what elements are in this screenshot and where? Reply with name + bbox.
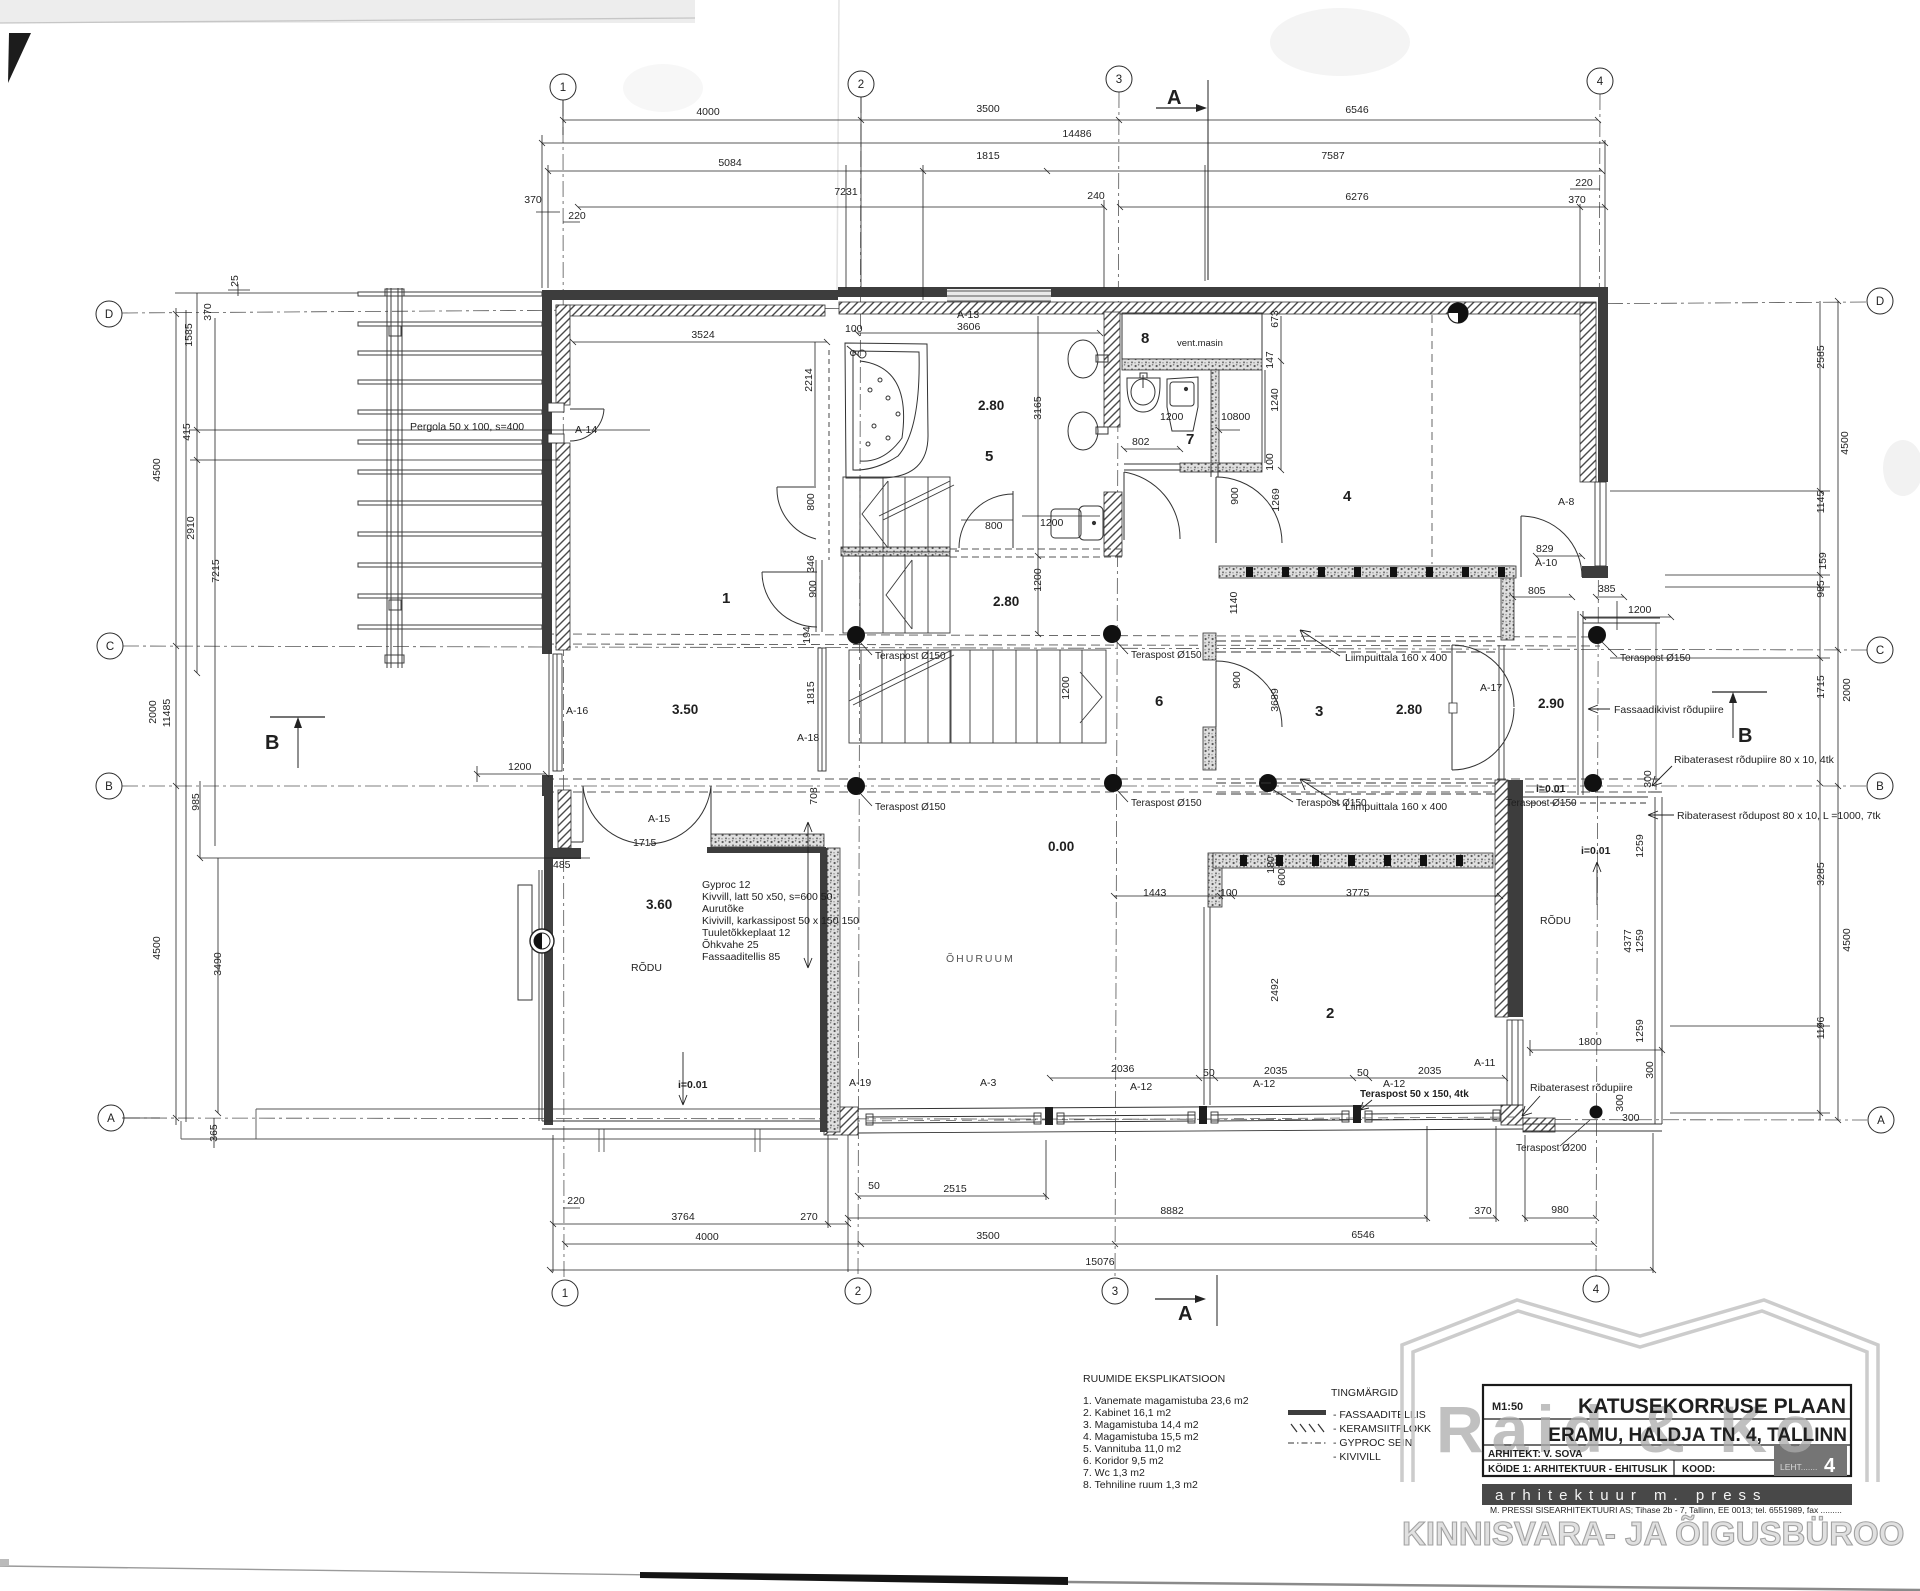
svg-text:RÕDU: RÕDU [631,961,662,974]
svg-text:1715: 1715 [1815,675,1827,699]
svg-text:300: 300 [1644,1061,1656,1079]
svg-text:A-16: A-16 [566,705,588,717]
svg-text:147: 147 [1264,351,1276,369]
svg-text:980: 980 [1551,1204,1569,1216]
svg-text:3764: 3764 [671,1211,695,1223]
svg-text:800: 800 [985,520,1003,532]
svg-text:3: 3 [1112,1286,1118,1298]
svg-text:ERAMU, HALDJA TN. 4, TALLINN: ERAMU, HALDJA TN. 4, TALLINN [1548,1425,1847,1446]
svg-text:365: 365 [208,1124,220,1142]
svg-text:Teraspost Ø150: Teraspost Ø150 [1131,798,1202,809]
svg-text:159: 159 [1817,552,1829,570]
svg-text:11485: 11485 [161,699,173,728]
svg-text:800: 800 [805,493,817,511]
svg-text:A-11: A-11 [1474,1057,1496,1069]
svg-text:Teraspost Ø150: Teraspost Ø150 [875,802,946,813]
svg-text:25: 25 [229,275,241,287]
svg-text:Teraspost Ø200: Teraspost Ø200 [1516,1143,1587,1154]
svg-text:2: 2 [855,1286,861,1298]
svg-text:Gyproc 12: Gyproc 12 [702,879,751,891]
svg-text:673: 673 [1269,310,1281,328]
svg-text:240: 240 [1087,190,1105,202]
svg-text:1200: 1200 [1040,517,1064,529]
svg-text:805: 805 [1528,585,1546,597]
svg-text:1259: 1259 [1634,1019,1646,1043]
svg-text:ÕHURUUM: ÕHURUUM [946,952,1015,965]
svg-text:Ribaterasest rõdupost 80 x 10,: Ribaterasest rõdupost 80 x 10, L =1000, … [1677,810,1881,822]
svg-text:LEHT.......: LEHT....... [1780,1462,1817,1472]
svg-text:6: 6 [1155,693,1163,710]
svg-text:3.50: 3.50 [672,702,698,717]
svg-text:3: 3 [1315,703,1323,720]
svg-text:A: A [107,1113,115,1125]
svg-text:4. Magamistuba 15,5 m2: 4. Magamistuba 15,5 m2 [1083,1431,1199,1443]
svg-text:6. Koridor 9,5 m2: 6. Koridor 9,5 m2 [1083,1455,1164,1467]
svg-text:300: 300 [1622,1112,1640,1124]
svg-text:8882: 8882 [1160,1205,1184,1217]
svg-text:A-15: A-15 [648,813,670,825]
svg-text:8. Tehniline ruum 1,3 m2: 8. Tehniline ruum 1,3 m2 [1083,1479,1198,1491]
svg-text:415: 415 [181,423,193,441]
svg-text:Õhkvahe 25: Õhkvahe 25 [702,938,759,951]
svg-text:708: 708 [808,787,820,805]
svg-text:2: 2 [1326,1005,1334,1022]
svg-text:C: C [1876,645,1884,657]
svg-text:i=0.01: i=0.01 [1581,845,1611,857]
svg-text:6276: 6276 [1345,191,1369,203]
svg-text:Ribaterasest rõdupiire: Ribaterasest rõdupiire [1530,1082,1633,1094]
svg-text:A: A [1877,1115,1885,1127]
svg-text:Teraspost Ø150: Teraspost Ø150 [1506,798,1577,809]
svg-text:Ribaterasest rõdupiire 80 x 10: Ribaterasest rõdupiire 80 x 10, 4tk [1674,754,1835,766]
svg-text:Fassaaditellis 85: Fassaaditellis 85 [702,951,780,963]
svg-text:180: 180 [1265,856,1277,874]
svg-text:7. Wc 1,3 m2: 7. Wc 1,3 m2 [1083,1467,1145,1479]
svg-text:D: D [1876,296,1884,308]
svg-text:900: 900 [807,580,819,598]
svg-text:10800: 10800 [1221,411,1250,423]
svg-text:220: 220 [567,1195,585,1207]
svg-text:802: 802 [1132,436,1150,448]
svg-text:7231: 7231 [834,186,858,198]
svg-text:985: 985 [1815,580,1827,598]
svg-text:2492: 2492 [1269,978,1281,1002]
svg-text:300: 300 [1614,1094,1626,1112]
svg-text:1. Vanemate magamistuba 23,6: 1. Vanemate magamistuba 23,6 m2 [1083,1395,1249,1407]
svg-text:A: A [1167,87,1181,109]
svg-text:2000: 2000 [1841,678,1853,702]
svg-text:1196: 1196 [1815,1017,1827,1040]
svg-text:600: 600 [1276,868,1288,886]
svg-text:2585: 2585 [1815,345,1827,369]
svg-text:KÖIDE 1: ARHITEKTUUR - EHITUSL: KÖIDE 1: ARHITEKTUUR - EHITUSLIK [1488,1462,1668,1475]
svg-text:1259: 1259 [1634,834,1646,858]
svg-text:KINNISVARA- JA ÕIGUSBÜROO: KINNISVARA- JA ÕIGUSBÜROO [1402,1515,1904,1552]
svg-text:220: 220 [1575,177,1593,189]
svg-text:1: 1 [560,82,566,94]
svg-text:1200: 1200 [1060,676,1072,700]
svg-text:4000: 4000 [696,106,720,118]
svg-text:i=0.01: i=0.01 [678,1079,708,1091]
svg-text:0.00: 0.00 [1048,839,1074,854]
svg-text:2.80: 2.80 [978,398,1004,413]
svg-text:- KIVIVILL: - KIVIVILL [1333,1451,1381,1463]
svg-text:A: A [1178,1303,1192,1325]
svg-text:4: 4 [1824,1455,1836,1477]
svg-text:370: 370 [1474,1205,1492,1217]
svg-text:TINGMÄRGID: TINGMÄRGID [1331,1387,1398,1399]
svg-text:346: 346 [805,555,817,573]
svg-text:385: 385 [1598,583,1616,595]
svg-text:4377: 4377 [1622,929,1634,953]
svg-text:3500: 3500 [976,103,1000,115]
svg-text:5. Vannituba 11,0 m2: 5. Vannituba 11,0 m2 [1083,1443,1181,1455]
svg-text:370: 370 [524,194,542,206]
svg-text:KOOD:: KOOD: [1682,1464,1715,1475]
svg-text:1145: 1145 [1815,491,1827,514]
svg-text:2035: 2035 [1418,1065,1442,1077]
svg-text:M. PRESSI SISEARHITEKTUURI AS: M. PRESSI SISEARHITEKTUURI AS; Tihase 2b… [1490,1505,1842,1515]
svg-text:1200: 1200 [1160,411,1184,423]
svg-text:7587: 7587 [1321,150,1345,162]
svg-text:- KERAMSIITPLOKK: - KERAMSIITPLOKK [1333,1423,1431,1435]
svg-text:B: B [1876,781,1884,793]
svg-text:194: 194 [801,626,813,644]
svg-text:220: 220 [568,210,586,222]
svg-text:829: 829 [1536,543,1554,555]
svg-text:6546: 6546 [1345,104,1369,116]
svg-text:2: 2 [858,79,864,91]
svg-text:2.90: 2.90 [1538,696,1564,711]
svg-text:i=0.01: i=0.01 [1536,783,1566,795]
svg-text:arhitektuur m. press: arhitektuur m. press [1495,1487,1768,1504]
svg-text:50: 50 [868,1180,880,1192]
svg-text:2036: 2036 [1111,1063,1135,1075]
svg-text:50: 50 [1357,1067,1369,1079]
svg-text:270: 270 [800,1211,818,1223]
svg-text:A-3: A-3 [980,1077,997,1089]
svg-text:Fassaadikivist rõdupiire: Fassaadikivist rõdupiire [1614,704,1724,716]
svg-text:1200: 1200 [508,761,532,773]
svg-text:1: 1 [562,1288,568,1300]
svg-text:4000: 4000 [695,1231,719,1243]
svg-text:3285: 3285 [1815,862,1827,886]
svg-text:2000: 2000 [147,700,159,724]
svg-text:100: 100 [1264,453,1276,471]
svg-text:100: 100 [1220,887,1238,899]
svg-text:A-18: A-18 [797,732,819,744]
svg-text:900: 900 [1231,671,1243,689]
svg-text:A-8: A-8 [1558,496,1575,508]
svg-text:3.60: 3.60 [646,897,672,912]
svg-text:370: 370 [1568,194,1586,206]
svg-text:4: 4 [1593,1284,1600,1296]
svg-text:4: 4 [1597,76,1604,88]
svg-text:6546: 6546 [1351,1229,1375,1241]
svg-text:4500: 4500 [1841,928,1853,952]
svg-text:7: 7 [1186,431,1194,448]
svg-text:3500: 3500 [976,1230,1000,1242]
svg-text:B: B [265,732,279,754]
svg-text:985: 985 [190,793,202,811]
svg-text:1815: 1815 [976,150,1000,162]
svg-text:Liimpuittala 160 x 400: Liimpuittala 160 x 400 [1345,801,1447,813]
svg-text:1269: 1269 [1270,488,1282,512]
svg-text:8: 8 [1141,330,1149,347]
svg-text:14486: 14486 [1062,128,1091,140]
svg-text:3: 3 [1116,74,1122,86]
svg-text:3490: 3490 [212,952,224,976]
svg-text:1: 1 [722,590,730,607]
svg-text:3524: 3524 [691,329,715,341]
svg-text:M1:50: M1:50 [1492,1401,1523,1413]
svg-text:4500: 4500 [1839,431,1851,455]
svg-text:4500: 4500 [151,458,163,482]
svg-text:2214: 2214 [803,368,815,392]
svg-text:900: 900 [1229,487,1241,505]
svg-text:2910: 2910 [185,516,197,540]
svg-text:RUUMIDE EKSPLIKATSIOON: RUUMIDE EKSPLIKATSIOON [1083,1373,1225,1385]
svg-text:2035: 2035 [1264,1065,1288,1077]
svg-text:C: C [106,641,114,653]
svg-text:5: 5 [985,448,993,465]
svg-text:1443: 1443 [1143,887,1167,899]
svg-text:vent.masin: vent.masin [1177,338,1223,349]
svg-text:2.80: 2.80 [993,594,1019,609]
svg-text:A-13: A-13 [957,309,979,321]
svg-text:Pergola 50 x 100, s=400: Pergola 50 x 100, s=400 [410,421,524,433]
svg-text:Kivivill, karkassipost 50 x 15: Kivivill, karkassipost 50 x 150 150 [702,915,859,927]
svg-text:1815: 1815 [805,681,817,705]
svg-text:2515: 2515 [943,1183,967,1195]
svg-text:2.80: 2.80 [1396,702,1422,717]
svg-text:4500: 4500 [151,936,163,960]
svg-text:A-14: A-14 [575,424,597,436]
svg-text:Teraspost Ø150: Teraspost Ø150 [1620,653,1691,664]
svg-text:3775: 3775 [1346,887,1370,899]
svg-text:3689: 3689 [1269,688,1281,712]
svg-text:1800: 1800 [1578,1036,1602,1048]
svg-text:Teraspost Ø150: Teraspost Ø150 [1131,650,1202,661]
svg-text:B: B [105,781,113,793]
svg-text:Teraspost 50 x 150, 4tk: Teraspost 50 x 150, 4tk [1360,1089,1469,1100]
svg-text:A-12: A-12 [1130,1081,1152,1093]
svg-text:3606: 3606 [957,321,981,333]
svg-text:B: B [1738,725,1752,747]
svg-text:ARHITEKT: V. SOVA: ARHITEKT: V. SOVA [1488,1449,1582,1460]
svg-text:RÕDU: RÕDU [1540,914,1571,927]
svg-text:A-19: A-19 [849,1077,871,1089]
svg-text:7215: 7215 [210,559,222,583]
svg-text:KATUSEKORRUSE PLAAN: KATUSEKORRUSE PLAAN [1578,1395,1846,1418]
svg-text:1715: 1715 [633,837,657,849]
svg-text:3. Magamistuba 14,4 m2: 3. Magamistuba 14,4 m2 [1083,1419,1199,1431]
svg-text:A-17: A-17 [1480,682,1502,694]
svg-text:A-12: A-12 [1253,1078,1275,1090]
svg-text:1200: 1200 [1628,604,1652,616]
svg-text:5084: 5084 [718,157,742,169]
svg-text:1259: 1259 [1634,929,1646,953]
svg-text:D: D [105,309,113,321]
svg-text:Tuuletõkkeplaat 12: Tuuletõkkeplaat 12 [702,927,790,939]
svg-text:485: 485 [553,859,571,871]
svg-text:2. Kabinet 16,1 m2: 2. Kabinet 16,1 m2 [1083,1407,1171,1419]
svg-text:1140: 1140 [1228,592,1240,615]
svg-text:Teraspost Ø150: Teraspost Ø150 [875,651,946,662]
svg-text:1585: 1585 [183,323,195,347]
svg-text:1240: 1240 [1269,388,1281,412]
svg-text:370: 370 [202,303,214,321]
svg-text:4: 4 [1343,488,1352,505]
svg-text:Liimpuittala 160 x 400: Liimpuittala 160 x 400 [1345,652,1447,664]
svg-text:50: 50 [1203,1067,1215,1079]
svg-text:Aurutõke: Aurutõke [702,903,744,915]
svg-text:Kivvill, latt 50 x50, s=600: Kivvill, latt 50 x50, s=600 50 [702,891,833,903]
svg-text:15076: 15076 [1085,1256,1114,1268]
